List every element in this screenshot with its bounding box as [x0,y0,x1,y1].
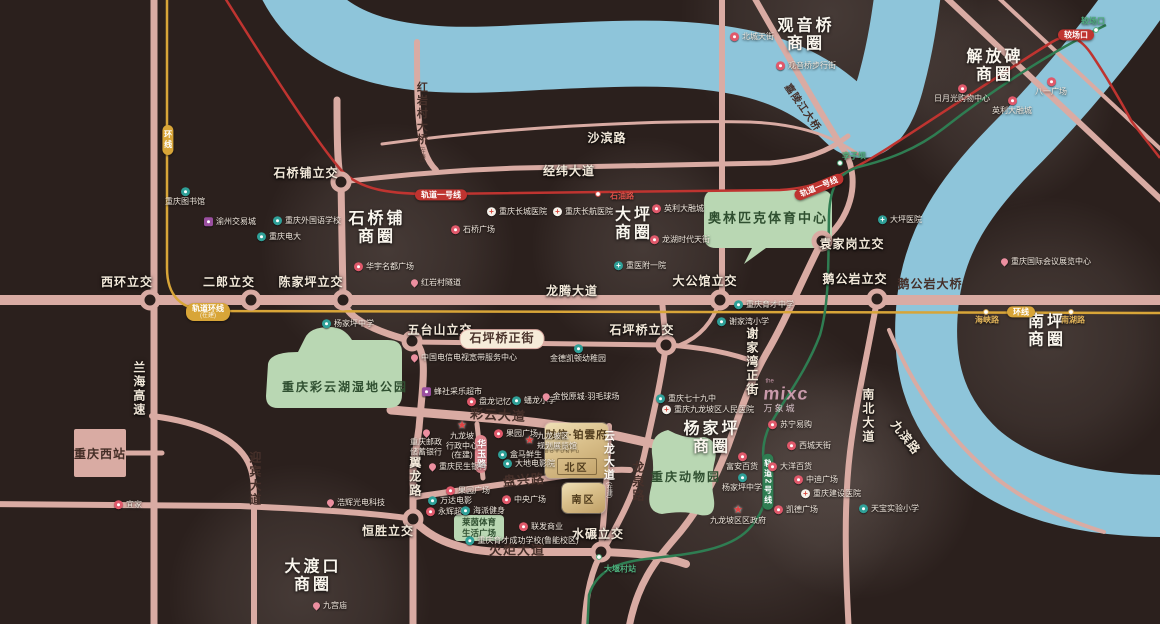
metro-station-label: 石油路 [610,191,634,200]
metro-station-label: 李子坝 [842,151,866,160]
mall-icon [426,508,435,517]
school-icon [512,397,521,406]
pin-icon [312,601,322,611]
icon-dot [325,323,328,326]
pin-icon [326,498,336,508]
poi-label: 盘龙记忆 [479,397,511,407]
poi-marker[interactable]: 万达电影 [428,496,472,506]
mall-icon [467,398,476,407]
poi-marker[interactable]: 海派健身 [461,506,505,516]
icon-dot [497,433,500,436]
icon-dot [741,455,744,458]
poi-marker[interactable]: 龙湖时代天街 [650,235,710,245]
poi-marker[interactable]: 九宫庙 [313,601,347,611]
poi-label: 重庆图书馆 [165,197,205,207]
mall-icon [768,421,777,430]
hosp-icon: + [662,406,671,415]
poi-marker[interactable]: ★九龙坡区 规划展览馆 [525,431,577,450]
school-icon [498,451,507,460]
poi-label: 八一广场 [1035,87,1067,97]
metro-station-label: 大堰村站 [604,564,636,573]
poi-label: 宜家 [126,500,142,510]
poi-marker[interactable]: 大洋百货 [768,462,812,472]
icon-dot [117,504,120,507]
poi-label: 谢家湾小学 [729,317,769,327]
poi-marker[interactable]: 蜂社采乐超市 [422,387,482,397]
hosp2-icon: + [614,262,623,271]
poi-label: 中国电信电视宽带服务中心 [421,353,517,363]
road-label: 石坪桥立交 [609,324,674,338]
mall-icon [738,452,747,461]
poi-label: 重庆邮政 储蓄银行 [410,437,442,456]
road-label: 迎宾大道 [247,451,261,507]
poi-label: 金德凯顿幼稚园 [550,354,606,364]
icon-dot [653,239,656,242]
poi-marker[interactable]: +重庆长城医院 [487,207,547,217]
icon-dot [961,87,964,90]
business-circle-label: 大坪 商圈 [615,207,653,244]
mall-icon [354,263,363,272]
poi-label: 重庆长航医院 [565,207,613,217]
poi-label: 天宝实验小学 [871,504,919,514]
poi-marker[interactable]: 天宝实验小学 [859,504,919,514]
poi-label: 西城天街 [799,441,831,451]
school-icon [717,318,726,327]
poi-marker[interactable]: 日月光购物中心 [934,84,990,104]
icon-dot [577,347,580,350]
poi-marker[interactable]: 重庆育才中学 [734,300,794,310]
road-label: 袁家岗立交 [819,238,884,252]
poi-marker[interactable]: 金德凯顿幼稚园 [550,344,606,364]
hosp-icon: + [553,208,562,217]
road-label: 南北大道 [860,388,874,444]
road-label: 经纬大道 [543,165,595,179]
icon-dot [506,463,509,466]
location-map[interactable]: 财信·铂雲府 CAIXIN BOYUNFU 北区 南区 重庆西站 the mix… [0,0,1160,624]
mall-icon [114,501,123,510]
mixc-logo-cn: 万象城 [763,405,808,414]
poi-marker[interactable]: 中迪广场 [794,475,838,485]
poi-label: 龙湖时代天街 [662,235,710,245]
poi-label: 重医附一院 [626,261,666,271]
poi-label: 大坪医院 [890,215,922,225]
poi-marker[interactable]: 杨家坪中学 [722,473,762,493]
icon-dot [515,400,518,403]
metro-line-badge: 轨道一号线 [415,189,467,200]
poi-marker[interactable]: 金悦原城·羽毛球场 [543,392,620,402]
poi-label: 九宫庙 [323,601,347,611]
school-icon [257,233,266,242]
icon-dot [771,466,774,469]
icon-dot [737,304,740,307]
road-label: 鹅公岩大桥 [897,278,962,292]
school-icon [465,537,474,546]
poi-marker[interactable]: 重庆育才成功学校(鲁能校区) [465,536,578,546]
road-label: 鹅公岩立交 [822,273,887,287]
poi-marker[interactable]: 宜家 [114,500,142,510]
poi-label: 九龙坡区区政府 [710,516,766,526]
road-label-sub: (在建) [605,482,611,498]
poi-marker[interactable]: 中央广场 [502,495,546,505]
poi-label: 中迪广场 [806,475,838,485]
poi-marker[interactable]: 重庆电大 [257,232,301,242]
icon-dot [357,266,360,269]
metro-line-badge: 环线 [1007,306,1035,317]
poi-label: 大洋百货 [780,462,812,472]
property-south-zone-label: 南区 [572,491,596,506]
metro-line-badge: 较场口 [1058,29,1094,40]
icon-dot [790,445,793,448]
road-label: 九滨路 [888,418,923,457]
poi-label: 重庆育才中学 [746,300,794,310]
school-icon [322,320,331,329]
road-label: 翼龙路 [407,456,421,498]
poi-label: 万达电影 [440,496,472,506]
poi-marker[interactable]: 苏宁易购 [768,420,812,430]
icon-dot [276,220,279,223]
icon-dot [659,398,662,401]
pin-icon [421,428,431,438]
poi-marker[interactable]: 谢家湾小学 [717,317,769,327]
business-circle-label: 石桥铺 商圈 [348,211,405,248]
poi-label: 富安百货 [726,462,758,472]
metro-line-badge: 轨道环线(在建) [186,303,230,321]
business-circle-label: 解放碑 商圈 [966,49,1023,86]
road-label: 龙腾大道 [546,285,598,299]
map-label-layer: 财信·铂雲府 CAIXIN BOYUNFU 北区 南区 重庆西站 the mix… [0,0,1160,624]
poi-marker[interactable]: 重庆外国语学校 [273,216,341,226]
poi-label: 杨家坪中学 [334,319,374,329]
icon-dot [501,454,504,457]
school-icon [574,344,583,353]
icon-dot [522,526,525,529]
icon-dot [454,229,457,232]
road-label: 二郎立交 [203,276,255,290]
poi-marker[interactable]: 凯德广场 [774,505,818,515]
poi-label: 金悦原城·羽毛球场 [553,392,620,402]
poi-label: 重庆长城医院 [499,207,547,217]
poi-marker[interactable]: 杨家坪中学 [322,319,374,329]
road-label: 谢家湾正街 [744,327,758,397]
metro-badge-sub: (在建) [192,313,224,320]
mall-icon [494,430,503,439]
mall-icon [776,62,785,71]
road-label: 石桥铺立交 [273,167,338,181]
market-icon [422,388,431,397]
property-south-block[interactable]: 南区 [562,483,605,513]
poi-marker[interactable]: 渝州交易城 [204,217,256,227]
poi-marker[interactable]: 重庆邮政 储蓄银行 [410,429,442,456]
school-icon [461,507,470,516]
icon-dot [470,401,473,404]
park-label: 重庆动物园 [651,471,721,485]
metro-line-badge: 轨道一号线 [793,172,845,202]
poi-label: 重庆七十九中 [668,394,716,404]
icon-dot [260,236,263,239]
poi-label: 北城天街 [742,32,774,42]
mall-icon [774,506,783,515]
mall-icon [1008,96,1017,105]
school-icon [734,301,743,310]
poi-label: 华宇名都广场 [366,262,414,272]
poi-label: 九龙坡区 规划展览馆 [537,431,577,450]
icon-dot [464,510,467,513]
road-label: 龙泉路 [630,461,644,503]
poi-marker[interactable]: 英利大融城 [992,96,1032,116]
mall-icon [1047,77,1056,86]
icon-dot [449,490,452,493]
park-label: 重庆彩云湖湿地公园 [282,381,408,395]
gov-icon: ★ [525,437,534,446]
poi-marker[interactable]: 浩辉光电科技 [327,498,385,508]
school-icon [428,497,437,506]
icon-dot [468,540,471,543]
poi-marker[interactable]: 重庆民生银行 [429,462,487,472]
icon-dot [862,508,865,511]
pin-icon [410,278,420,288]
icon-dot [779,65,782,68]
market-icon [204,218,213,227]
poi-marker[interactable]: +重庆建设医院 [801,489,861,499]
poi-marker[interactable]: ★九龙坡区区政府 [710,506,766,526]
mall-icon [730,33,739,42]
poi-label: 凯德广场 [786,505,818,515]
poi-label: 重庆外国语学校 [285,216,341,226]
mall-icon [652,205,661,214]
poi-marker[interactable]: 北城天街 [730,32,774,42]
road-label-sub: (在建) [418,147,424,163]
icon-dot [733,36,736,39]
road-label: 西环立交 [101,276,153,290]
mall-icon [519,523,528,532]
icon-dot [1011,99,1014,102]
road-label: 红岩村大桥(在建) [415,82,428,163]
mall-icon [787,442,796,451]
road-label: 盘兴路 [503,472,546,490]
icon-dot [431,500,434,503]
icon-dot [425,391,428,394]
poi-marker[interactable]: +重庆长航医院 [553,207,613,217]
poi-marker[interactable]: 果园广场 [446,486,490,496]
poi-marker[interactable]: ★九龙坡 行政中心 (在建) [446,422,478,461]
hosp2-icon: + [878,216,887,225]
mall-icon [446,487,455,496]
poi-marker[interactable]: 重庆国际会议展览中心 [1001,257,1091,267]
metro-station-label: 南湖路 [1061,315,1085,324]
road-label: 水碾立交 [572,528,624,542]
poi-label: 联发商业 [531,522,563,532]
road-label: 兰海高速 [131,361,145,417]
school-icon [181,187,190,196]
poi-marker[interactable]: 红岩村隧道 [411,278,461,288]
mall-icon [502,496,511,505]
metro-line-badge: 环线 [162,125,173,155]
hosp-icon: + [801,490,810,499]
road-label: 陈家坪立交 [278,276,343,290]
icon-dot [429,511,432,514]
icon-dot [797,479,800,482]
poi-marker[interactable]: 西城天街 [787,441,831,451]
mixc-logo-text: mixc [763,385,810,403]
poi-label: 重庆民生银行 [439,462,487,472]
poi-label: 重庆国际会议展览中心 [1011,257,1091,267]
road-label: 大公馆立交 [672,275,737,289]
metro-station-label: 较场口 [1081,16,1105,25]
school-icon [859,505,868,514]
mall-icon [794,476,803,485]
poi-label: 九龙坡 行政中心 (在建) [446,432,478,461]
school-icon [273,217,282,226]
business-circle-label: 观音桥 商圈 [777,18,834,55]
icon-dot [1050,80,1053,83]
poi-marker[interactable]: 石桥广场 [451,225,495,235]
poi-label: 海派健身 [473,506,505,516]
poi-label: 浩辉光电科技 [337,498,385,508]
poi-label: 重庆九龙坡区人民医院 [674,405,754,415]
metro-station-label: 海峡路 [975,315,999,324]
gov-icon: ★ [458,422,467,431]
school-icon [656,395,665,404]
icon-dot [655,208,658,211]
mixc-mall-logo: the mixc 万象城 [763,379,808,414]
icon-dot [720,321,723,324]
pin-icon [541,392,551,402]
poi-label: 重庆建设医院 [813,489,861,499]
poi-marker[interactable]: 盘龙记忆 [467,397,511,407]
icon-dot [771,424,774,427]
poi-marker[interactable]: 华宇名都广场 [354,262,414,272]
poi-label: 红岩村隧道 [421,278,461,288]
poi-label: 中央广场 [514,495,546,505]
poi-marker[interactable]: 大地电影院 [503,459,555,469]
poi-marker[interactable]: 中国电信电视宽带服务中心 [411,353,517,363]
school-icon [738,473,747,482]
poi-marker[interactable]: 富安百货 [726,452,758,472]
road-label: 嘉陵江大桥 [782,82,823,134]
poi-label: 石桥广场 [463,225,495,235]
poi-label: 果园广场 [458,486,490,496]
gov-icon: ★ [734,506,743,515]
poi-label: 英利大融城 [992,106,1032,116]
poi-label: 蜂社采乐超市 [434,387,482,397]
poi-marker[interactable]: 重庆七十九中 [656,394,716,404]
poi-label: 苏宁易购 [780,420,812,430]
hosp-icon: + [487,208,496,217]
business-circle-label: 大渡口 商圈 [284,559,341,596]
poi-label: 观音桥步行街 [788,61,836,71]
poi-marker[interactable]: +重医附一院 [614,261,666,271]
road-label: 恒胜立交 [362,525,414,539]
poi-label: 渝州交易城 [216,217,256,227]
road-label: 石坪桥正街 [459,329,544,349]
mall-icon [650,236,659,245]
pin-icon [1000,257,1010,267]
chongqing-west-station-box: 重庆西站 [74,429,126,477]
mall-icon [958,84,967,93]
road-label: 云龙大道(在建) [602,430,615,498]
icon-dot [777,509,780,512]
icon-dot [505,499,508,502]
poi-marker[interactable]: +大坪医院 [878,215,922,225]
school-icon [503,460,512,469]
icon-dot [741,476,744,479]
poi-marker[interactable]: 八一广场 [1035,77,1067,97]
pin-icon [428,462,438,472]
property-north-zone-label: 北区 [557,458,597,475]
poi-label: 重庆育才成功学校(鲁能校区) [477,536,578,546]
road-label: 彩云大道 [470,407,527,425]
poi-marker[interactable]: 联发商业 [519,522,563,532]
poi-label: 英利大融城 [664,204,704,214]
mall-icon [768,463,777,472]
poi-label: 大地电影院 [515,459,555,469]
poi-marker[interactable]: 重庆图书馆 [165,187,205,207]
road-label: 沙滨路 [587,132,626,146]
pin-icon [410,353,420,363]
icon-dot [184,190,187,193]
poi-label: 日月光购物中心 [934,94,990,104]
poi-marker[interactable]: +重庆九龙坡区人民医院 [662,405,754,415]
icon-dot [207,221,210,224]
park-label: 奥林匹克体育中心 [708,212,828,227]
poi-marker[interactable]: 观音桥步行街 [776,61,836,71]
mall-icon [451,226,460,235]
poi-label: 重庆电大 [269,232,301,242]
poi-label: 杨家坪中学 [722,483,762,493]
poi-marker[interactable]: 英利大融城 [652,204,704,214]
